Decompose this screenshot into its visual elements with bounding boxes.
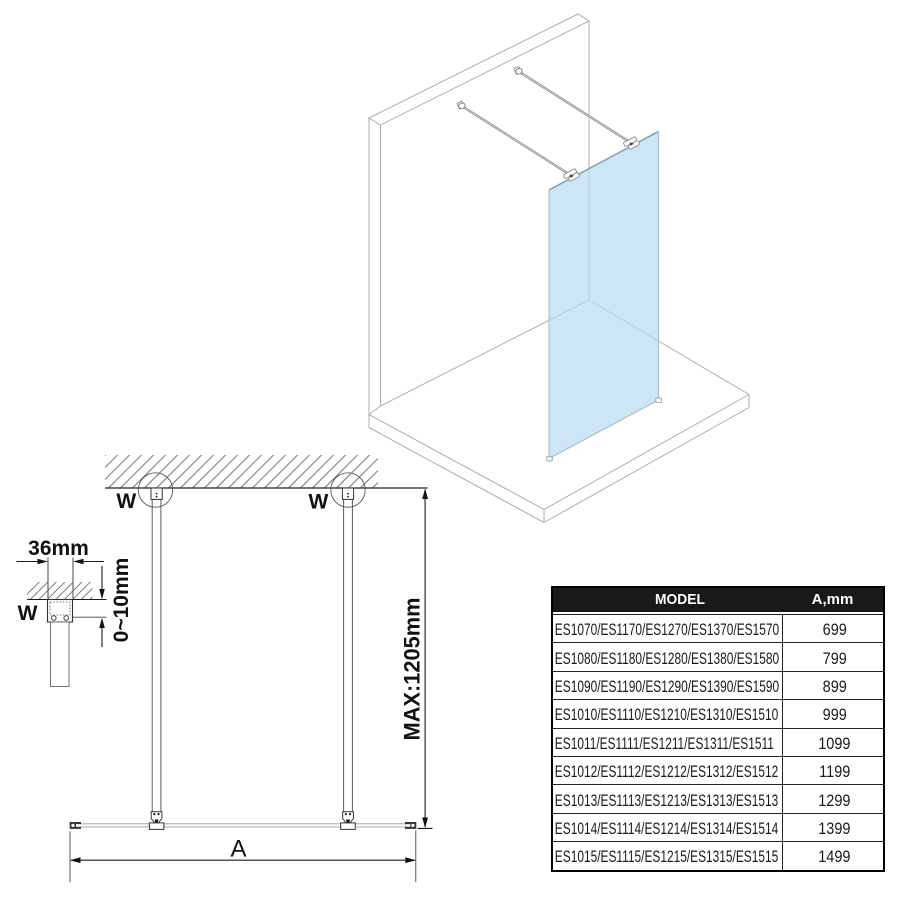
svg-text:MAX:1205mm: MAX:1205mm (399, 598, 424, 741)
svg-text:A: A (230, 836, 246, 863)
svg-text:0~10mm: 0~10mm (110, 558, 133, 643)
svg-text:W: W (116, 490, 136, 513)
svg-text:W: W (18, 602, 38, 625)
svg-text:W: W (308, 491, 328, 514)
svg-text:36mm: 36mm (28, 537, 89, 560)
